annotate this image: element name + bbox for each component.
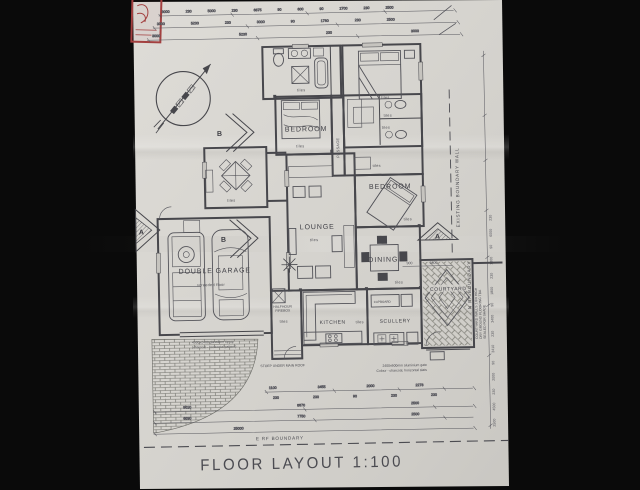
main-bedroom-tiles: tiles bbox=[384, 114, 392, 118]
stoep-note: STOEP UNDER MAIN ROOF bbox=[260, 363, 305, 368]
bedroom-top-label: BEDROOM bbox=[285, 126, 328, 134]
gate-annotation: 2400x600mm aluminium gate Colour - charc… bbox=[376, 363, 427, 373]
bedroom-right-label: BEDROOM bbox=[369, 183, 412, 191]
section-b-label: B bbox=[217, 131, 222, 138]
floor-plan-photo: 3000 230 5000 230 6875 90 600 90 2700 23… bbox=[0, 0, 640, 490]
cupboard-label: CUPBOARD bbox=[374, 300, 392, 304]
passage-label: PASSAGE bbox=[336, 137, 340, 157]
chair-icon bbox=[377, 236, 387, 244]
bath2-tiles: tiles bbox=[382, 126, 390, 130]
chair-icon bbox=[378, 273, 388, 281]
scullery-label: SCULLERY bbox=[380, 318, 411, 325]
dining-tiles: tiles bbox=[395, 280, 403, 284]
section-b-label-2: B bbox=[221, 237, 226, 244]
plant-icon bbox=[281, 256, 297, 272]
bath1-tiles: tiles bbox=[381, 96, 389, 100]
kitchen-label: KITCHEN bbox=[320, 320, 346, 327]
dining-label: DINING bbox=[368, 257, 398, 265]
bedroom-top-tiles: tiles bbox=[296, 144, 304, 148]
kitchen-tiles: tiles bbox=[356, 320, 364, 324]
garage-floor-note: screeded floor bbox=[197, 283, 226, 288]
stoep-tiles: tiles bbox=[280, 320, 288, 324]
lounge-label: LOUNGE bbox=[300, 224, 335, 232]
garage-label: DOUBLE GARAGE bbox=[179, 267, 252, 275]
photo-of-floor-plan: { "title": "FLOOR LAYOUT 1:100", "rooms"… bbox=[0, 0, 640, 490]
paper-crease-1 bbox=[133, 134, 509, 160]
hall-tiles: tiles bbox=[373, 164, 381, 168]
yard-wall-stub bbox=[472, 263, 502, 264]
section-a-label-2: A bbox=[435, 234, 440, 241]
courtyard-label: COURTYARD bbox=[430, 286, 467, 293]
courtyard-dim-values: 900 1800 bbox=[406, 261, 437, 266]
lounge-tiles: tiles bbox=[310, 238, 318, 242]
bedroom-right-tiles: tiles bbox=[404, 217, 412, 221]
patio-tiles: tiles bbox=[227, 199, 235, 203]
bottom-dim-row-4: 25000 bbox=[234, 427, 244, 431]
bottom-boundary-label: E RF BOUNDARY bbox=[256, 435, 304, 441]
courtyard-note-3: SEALED FOR SHADE bbox=[482, 304, 487, 339]
firebox-note-2: FIREBOX bbox=[275, 309, 291, 313]
section-a-label: A bbox=[139, 229, 144, 236]
chair-icon bbox=[399, 251, 407, 261]
gate-note-1: 2400x600mm aluminium gate bbox=[382, 363, 427, 368]
ensuite-tiles: tiles bbox=[297, 88, 305, 92]
